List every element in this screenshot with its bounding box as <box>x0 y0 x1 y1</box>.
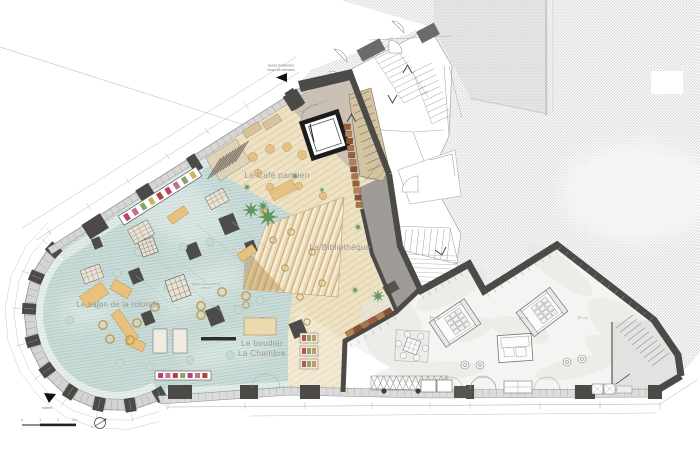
svg-text:Le boudoir: Le boudoir <box>241 339 283 348</box>
svg-text:issue de secours: issue de secours <box>267 68 295 72</box>
svg-text:Le salon de la rotonde: Le salon de la rotonde <box>76 300 160 309</box>
svg-text:accès livraisons: accès livraisons <box>268 64 294 68</box>
svg-text:⊢⊣: ⊢⊣ <box>578 315 588 322</box>
svg-text:175 m2: 175 m2 <box>201 286 211 290</box>
svg-text:entrée: entrée <box>42 406 52 410</box>
svg-text:La Chambre: La Chambre <box>238 349 286 358</box>
svg-text:⊢⊣: ⊢⊣ <box>430 315 440 322</box>
svg-text:Le Café parisien: Le Café parisien <box>244 170 309 180</box>
svg-text:La Bibliothèque: La Bibliothèque <box>309 242 371 252</box>
svg-text:⊢⊣: ⊢⊣ <box>519 315 529 322</box>
svg-text:3m: 3m <box>72 417 78 422</box>
